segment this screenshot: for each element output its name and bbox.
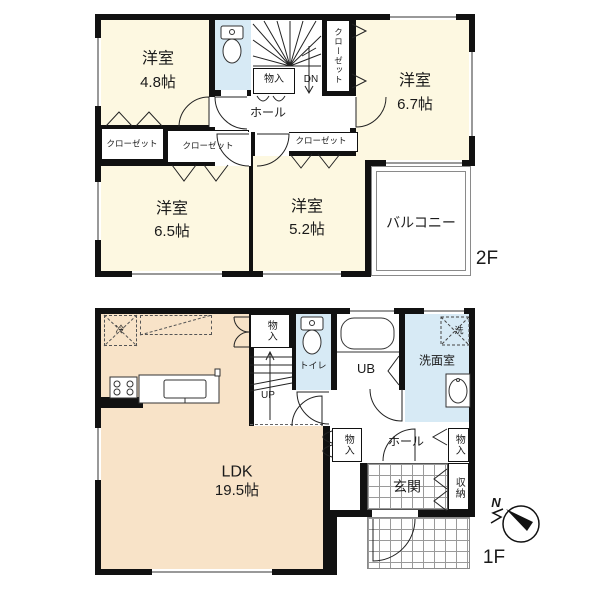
door-gap xyxy=(209,97,215,127)
room-2f-48 xyxy=(101,20,209,125)
floor1-label: 1F xyxy=(483,548,505,568)
ldk-open-boundary xyxy=(250,424,323,425)
room-48-label: 洋室 xyxy=(142,52,174,69)
hall-1f-label: ホール xyxy=(388,436,424,449)
closet-center-label: クローゼット xyxy=(182,142,233,151)
washroom-label: 洗面室 xyxy=(419,355,455,368)
wall-ldk-hall xyxy=(323,426,330,569)
window xyxy=(95,182,101,240)
room-65-size: 6.5帖 xyxy=(154,224,190,240)
hall-1f-a xyxy=(292,390,405,426)
storage-hall-left-label: 物入 xyxy=(342,434,353,456)
room-ub xyxy=(337,314,399,390)
room-48-size: 4.8帖 xyxy=(140,75,176,91)
room-2f-toilet xyxy=(215,20,251,90)
window xyxy=(95,428,101,480)
storage-2f-label: 物入 xyxy=(264,75,284,86)
entrance-label: 玄関 xyxy=(393,480,421,495)
hall-1f-d xyxy=(330,463,360,510)
window xyxy=(424,308,464,314)
balcony-sliding-door xyxy=(386,160,462,166)
room-52-label: 洋室 xyxy=(291,200,323,217)
room-52-size: 5.2帖 xyxy=(289,222,325,238)
room-ldk-dining xyxy=(249,426,323,569)
ldk-size: 19.5帖 xyxy=(215,483,259,499)
window xyxy=(469,52,475,136)
floor2-label: 2F xyxy=(476,249,498,269)
window xyxy=(132,271,222,277)
closet-side-label: クローゼット xyxy=(334,28,343,85)
stairs-dn-label: DN xyxy=(304,75,318,86)
ldk-label: LDK xyxy=(221,465,252,482)
fridge-label: 冷 xyxy=(115,325,124,334)
hall-2f-label: ホール xyxy=(250,107,286,120)
stairs-up-label: UP xyxy=(261,391,275,402)
compass-north-label: N xyxy=(491,496,500,510)
door-gap xyxy=(221,90,247,96)
room-67-size: 6.7帖 xyxy=(397,97,433,113)
door-gap xyxy=(350,96,356,128)
window xyxy=(152,569,272,575)
window xyxy=(95,38,101,106)
room-1f-toilet xyxy=(296,314,331,390)
stairs-1f-area xyxy=(249,348,292,426)
porch xyxy=(367,517,470,569)
room-ldk xyxy=(101,314,249,569)
storage-hall-right-label: 物入 xyxy=(453,434,464,456)
room-65-label: 洋室 xyxy=(156,202,188,219)
closet-52-label: クローゼット xyxy=(295,137,346,146)
storage-top-label: 物入 xyxy=(265,320,276,342)
cupboard-space xyxy=(140,315,212,335)
kitchen-wall-stub xyxy=(95,397,143,408)
floor-plan: 洋室 4.8帖 洋室 6.7帖 洋室 6.5帖 洋室 5.2帖 バルコニー ホー… xyxy=(0,0,600,600)
room-67-label: 洋室 xyxy=(399,74,431,91)
window xyxy=(350,308,394,314)
compass xyxy=(491,506,539,542)
window xyxy=(390,14,456,20)
wall-genkan-left xyxy=(360,463,367,510)
door-gap xyxy=(372,510,418,517)
bath-label: UB xyxy=(357,362,375,376)
balcony-label: バルコニー xyxy=(386,216,456,231)
window xyxy=(263,271,341,277)
closet-left-label: クローゼット xyxy=(106,140,157,149)
washer-label: 洗 xyxy=(454,326,463,335)
room-2f-65 xyxy=(101,166,249,271)
door-bay xyxy=(255,132,289,156)
shoe-storage-label: 収納 xyxy=(453,477,464,499)
toilet-label: トイレ xyxy=(299,361,326,370)
